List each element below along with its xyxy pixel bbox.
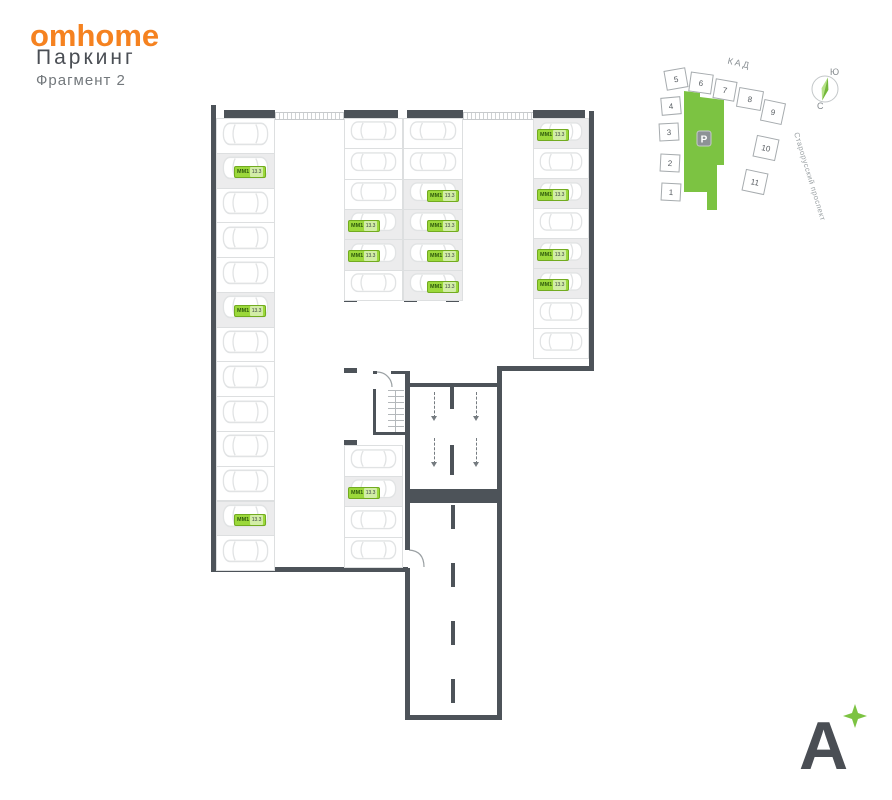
compass: Ю С — [812, 67, 839, 111]
car-icon — [350, 509, 397, 536]
parking-spot — [533, 328, 589, 359]
spot-area: 13.3 — [553, 190, 566, 200]
window-band — [463, 112, 533, 120]
car-icon — [350, 151, 397, 177]
parking-spot — [344, 445, 403, 477]
parking-spot — [533, 298, 589, 329]
parking-spot — [403, 118, 463, 149]
spot-label-badge[interactable]: ММ113.3 — [537, 279, 569, 291]
spot-number: ММ1 — [237, 515, 249, 525]
spot-area: 13.3 — [553, 280, 566, 290]
spot-label-badge[interactable]: ММ113.3 — [537, 189, 569, 201]
building-1: 1 — [661, 183, 681, 201]
parking-spot — [216, 361, 275, 397]
wall — [224, 110, 275, 118]
parking-area-shape — [684, 91, 724, 210]
car-icon — [539, 211, 583, 237]
wall — [444, 383, 460, 387]
spot-area: 13.3 — [553, 250, 566, 260]
spot-label-badge[interactable]: ММ113.3 — [348, 487, 380, 499]
parking-spot — [344, 179, 403, 210]
wall — [533, 110, 585, 118]
lane-arrow — [476, 438, 477, 464]
car-icon — [350, 181, 397, 207]
wall — [450, 445, 454, 475]
car-icon — [409, 151, 457, 177]
spot-label-badge[interactable]: ММ113.3 — [234, 305, 266, 317]
sparkle-icon — [843, 704, 867, 728]
spot-area: 13.3 — [250, 167, 263, 177]
developer-logo-letter: A — [799, 712, 848, 780]
parking-spot[interactable]: ММ113.3 — [533, 178, 589, 209]
spot-label-badge[interactable]: ММ113.3 — [427, 220, 459, 232]
spot-area: 13.3 — [250, 306, 263, 316]
spot-number: ММ1 — [540, 250, 552, 260]
spot-label-badge[interactable]: ММ113.3 — [427, 190, 459, 202]
wall — [373, 432, 407, 435]
street-label: Старорусский проспект — [792, 131, 828, 222]
wall — [405, 715, 502, 720]
parking-spot — [216, 222, 275, 258]
spot-number: ММ1 — [430, 251, 442, 261]
staircase-divider — [395, 390, 396, 432]
car-icon — [222, 364, 269, 395]
site-map: 1234567891011 P КАД Старорусский проспек… — [648, 40, 892, 235]
parking-spot[interactable]: ММ113.3 — [403, 209, 463, 240]
parking-spot — [216, 535, 275, 571]
spot-label-badge[interactable]: ММ113.3 — [427, 250, 459, 262]
spot-area: 13.3 — [250, 515, 263, 525]
building-9: 9 — [761, 100, 786, 125]
spot-label-badge[interactable]: ММ113.3 — [427, 281, 459, 293]
spot-number: ММ1 — [430, 221, 442, 231]
car-icon — [222, 329, 269, 360]
parking-spot — [403, 148, 463, 179]
building-11: 11 — [742, 169, 768, 194]
spot-label-badge[interactable]: ММ113.3 — [537, 129, 569, 141]
fragment-subtitle: Фрагмент 2 — [36, 72, 126, 89]
spot-area: 13.3 — [364, 488, 377, 498]
car-icon — [350, 448, 397, 475]
parking-spot[interactable]: ММ113.3 — [533, 238, 589, 269]
spot-number: ММ1 — [237, 167, 249, 177]
car-icon — [350, 120, 397, 146]
parking-spot[interactable]: ММ113.3 — [403, 270, 463, 301]
parking-spot — [344, 148, 403, 179]
wall — [498, 366, 594, 371]
wall — [407, 110, 463, 118]
parking-spot[interactable]: ММ113.3 — [344, 239, 403, 270]
parking-spot — [216, 396, 275, 432]
parking-spot — [533, 148, 589, 179]
lane-arrow — [434, 438, 435, 464]
car-icon — [222, 538, 269, 569]
spot-area: 13.3 — [443, 282, 456, 292]
wall — [373, 389, 376, 435]
parking-plan-page: omhome Паркинг Фрагмент 2 ММ113.3ММ113.3… — [0, 0, 892, 800]
car-icon — [539, 151, 583, 177]
car-icon — [222, 260, 269, 291]
building-3: 3 — [659, 123, 679, 141]
wall — [373, 371, 377, 374]
spot-label-badge[interactable]: ММ113.3 — [234, 166, 266, 178]
parking-spot[interactable]: ММ113.3 — [344, 476, 403, 508]
car-icon — [222, 399, 269, 430]
spot-number: ММ1 — [540, 280, 552, 290]
parking-spot — [216, 466, 275, 502]
parking-spot[interactable]: ММ113.3 — [216, 292, 275, 328]
car-icon — [539, 331, 583, 357]
wall — [497, 366, 502, 720]
spot-number: ММ1 — [351, 488, 363, 498]
page-title: Паркинг — [36, 46, 136, 70]
parking-spot[interactable]: ММ113.3 — [533, 268, 589, 299]
spot-number: ММ1 — [430, 282, 442, 292]
spot-number: ММ1 — [351, 221, 363, 231]
car-icon — [539, 301, 583, 327]
building-8: 8 — [737, 88, 764, 111]
parking-spot[interactable]: ММ113.3 — [216, 501, 275, 537]
spot-area: 13.3 — [364, 221, 377, 231]
spot-number: ММ1 — [540, 190, 552, 200]
parking-spot — [216, 188, 275, 224]
building-6: 6 — [689, 72, 713, 94]
wall — [589, 111, 594, 370]
spot-label-badge[interactable]: ММ113.3 — [537, 249, 569, 261]
stair-door-arc — [377, 372, 392, 387]
spot-area: 13.3 — [443, 221, 456, 231]
parking-p-label: P — [701, 135, 708, 146]
spot-number: ММ1 — [430, 191, 442, 201]
compass-north-label: С — [817, 101, 824, 111]
window-band — [275, 112, 344, 120]
wall — [391, 371, 407, 374]
parking-spot[interactable]: ММ113.3 — [533, 118, 589, 149]
spot-label-badge[interactable]: ММ113.3 — [348, 250, 380, 262]
car-icon — [409, 120, 457, 146]
spot-number: ММ1 — [237, 306, 249, 316]
building-10: 10 — [753, 135, 779, 160]
spot-area: 13.3 — [443, 191, 456, 201]
parking-spot — [344, 506, 403, 538]
road-center-line — [451, 505, 455, 715]
parking-spot — [216, 257, 275, 293]
building-5: 5 — [664, 68, 688, 90]
parking-spot — [533, 208, 589, 239]
building-2: 2 — [660, 154, 680, 172]
spot-label-badge[interactable]: ММ113.3 — [234, 514, 266, 526]
car-icon — [222, 121, 269, 152]
wall — [405, 371, 410, 550]
gate-wall — [405, 489, 497, 503]
wall — [344, 110, 398, 118]
lane-arrow — [476, 392, 477, 418]
building-4: 4 — [661, 97, 681, 116]
developer-logo: A — [793, 690, 885, 786]
parking-spot — [216, 431, 275, 467]
spot-area: 13.3 — [443, 251, 456, 261]
car-icon — [350, 272, 397, 298]
wall-stub — [344, 368, 357, 373]
lane-arrow — [434, 392, 435, 418]
parking-spot[interactable]: ММ113.3 — [344, 209, 403, 240]
building-7: 7 — [713, 79, 737, 101]
parking-spot[interactable]: ММ113.3 — [216, 153, 275, 189]
parking-spot — [216, 118, 275, 154]
parking-spot — [344, 118, 403, 149]
parking-spot[interactable]: ММ113.3 — [403, 179, 463, 210]
spot-label-badge[interactable]: ММ113.3 — [348, 220, 380, 232]
car-icon — [222, 190, 269, 221]
wall — [405, 568, 410, 715]
parking-spot — [344, 270, 403, 301]
car-icon — [350, 539, 397, 566]
spot-number: ММ1 — [351, 251, 363, 261]
spot-number: ММ1 — [540, 130, 552, 140]
staircase — [388, 390, 404, 432]
car-icon — [222, 468, 269, 499]
spot-area: 13.3 — [364, 251, 377, 261]
parking-spot — [216, 327, 275, 363]
parking-spot[interactable]: ММ113.3 — [403, 239, 463, 270]
parking-spot — [344, 537, 403, 569]
road-door-arc — [409, 550, 424, 567]
spot-area: 13.3 — [553, 130, 566, 140]
car-icon — [222, 225, 269, 256]
compass-south-label: Ю — [830, 67, 839, 77]
car-icon — [222, 433, 269, 464]
road-label: КАД — [727, 56, 752, 71]
